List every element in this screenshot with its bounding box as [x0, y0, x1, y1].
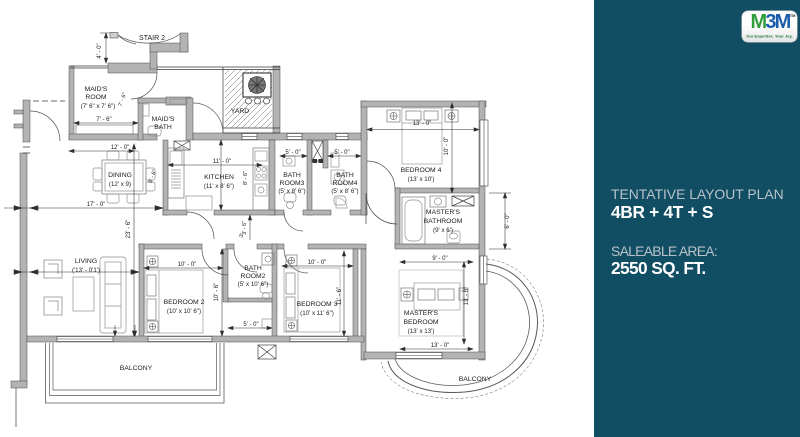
- svg-text:7' - 6": 7' - 6": [118, 92, 128, 107]
- svg-text:8' - 6": 8' - 6": [243, 171, 249, 185]
- svg-text:BEDROOM 2: BEDROOM 2: [164, 299, 205, 306]
- svg-text:7' - 6": 7' - 6": [96, 117, 111, 123]
- svg-text:11' - 6": 11' - 6": [337, 287, 343, 305]
- svg-text:STAIR 2: STAIR 2: [139, 35, 165, 42]
- svg-text:5' - 0": 5' - 0": [243, 322, 258, 328]
- svg-text:ROOM2: ROOM2: [241, 273, 266, 280]
- svg-text:KITCHEN: KITCHEN: [204, 174, 234, 181]
- svg-text:ROOM: ROOM: [85, 94, 106, 101]
- svg-text:17' - 0": 17' - 0": [87, 202, 106, 208]
- svg-text:11' - 0": 11' - 0": [213, 159, 231, 165]
- svg-text:3' - 6": 3' - 6": [242, 221, 248, 235]
- svg-text:ROOM4: ROOM4: [333, 180, 358, 187]
- svg-text:MAID'S: MAID'S: [152, 116, 175, 123]
- svg-text:BATH: BATH: [244, 265, 262, 272]
- svg-text:10' - 0": 10' - 0": [308, 260, 327, 266]
- svg-text:BALCONY: BALCONY: [120, 365, 153, 372]
- svg-text:MASTER'S: MASTER'S: [426, 209, 461, 216]
- svg-text:YARD: YARD: [231, 108, 249, 115]
- svg-text:9' - 0": 9' - 0": [432, 256, 447, 262]
- svg-text:BEDROOM: BEDROOM: [403, 319, 438, 326]
- svg-text:MASTER'S: MASTER'S: [404, 310, 439, 317]
- svg-text:(10' x 11' 6"): (10' x 11' 6"): [300, 310, 334, 317]
- svg-text:6' - 0": 6' - 0": [505, 213, 511, 228]
- svg-text:(11' x 8' 6"): (11' x 8' 6"): [204, 183, 234, 190]
- svg-text:10' - 6": 10' - 6": [214, 283, 220, 302]
- svg-text:9' - 6": 9' - 6": [148, 169, 158, 184]
- svg-text:(5' x 10' 6"): (5' x 10' 6"): [238, 281, 269, 288]
- svg-text:LIVING: LIVING: [75, 258, 97, 265]
- svg-text:BATH: BATH: [283, 172, 301, 179]
- svg-text:5' - 0": 5' - 0": [285, 150, 300, 156]
- svg-text:(5' x 8' 6"): (5' x 8' 6"): [331, 188, 358, 195]
- svg-text:5' - 0": 5' - 0": [334, 150, 349, 156]
- svg-text:(13' x 13'): (13' x 13'): [408, 328, 435, 335]
- svg-text:13' - 0": 13' - 0": [464, 287, 470, 306]
- svg-text:(5' x 8' 6"): (5' x 8' 6"): [278, 188, 305, 195]
- svg-text:(13' x 10'): (13' x 10'): [408, 176, 435, 183]
- svg-text:BEDROOM 4: BEDROOM 4: [401, 167, 442, 174]
- svg-text:BATH: BATH: [336, 172, 354, 179]
- svg-text:ROOM3: ROOM3: [280, 180, 305, 187]
- svg-text:12' - 0": 12' - 0": [111, 145, 130, 151]
- svg-text:4' - 0": 4' - 0": [97, 43, 103, 58]
- svg-text:BALCONY: BALCONY: [459, 376, 492, 383]
- svg-text:10' - 0": 10' - 0": [178, 262, 197, 268]
- svg-text:MAID'S: MAID'S: [85, 86, 108, 93]
- svg-text:(12' x 9): (12' x 9): [109, 181, 131, 188]
- svg-text:(9' x 6'): (9' x 6'): [433, 227, 453, 234]
- svg-text:DINING: DINING: [108, 172, 132, 179]
- svg-text:23' - 6": 23' - 6": [126, 220, 132, 239]
- svg-text:('13' - 0'1'): ('13' - 0'1'): [72, 267, 100, 274]
- svg-text:(7' 6" x 7' 6"): (7' 6" x 7' 6"): [81, 103, 116, 110]
- svg-text:13' - 0": 13' - 0": [431, 343, 450, 349]
- svg-text:(10' x 10' 6"): (10' x 10' 6"): [167, 308, 201, 315]
- svg-text:BATH: BATH: [154, 124, 172, 131]
- svg-text:BEDROOM 3: BEDROOM 3: [297, 301, 338, 308]
- svg-text:13' - 0": 13' - 0": [413, 121, 432, 127]
- svg-text:10' - 0": 10' - 0": [444, 137, 450, 156]
- svg-text:BATHROOM: BATHROOM: [424, 218, 463, 225]
